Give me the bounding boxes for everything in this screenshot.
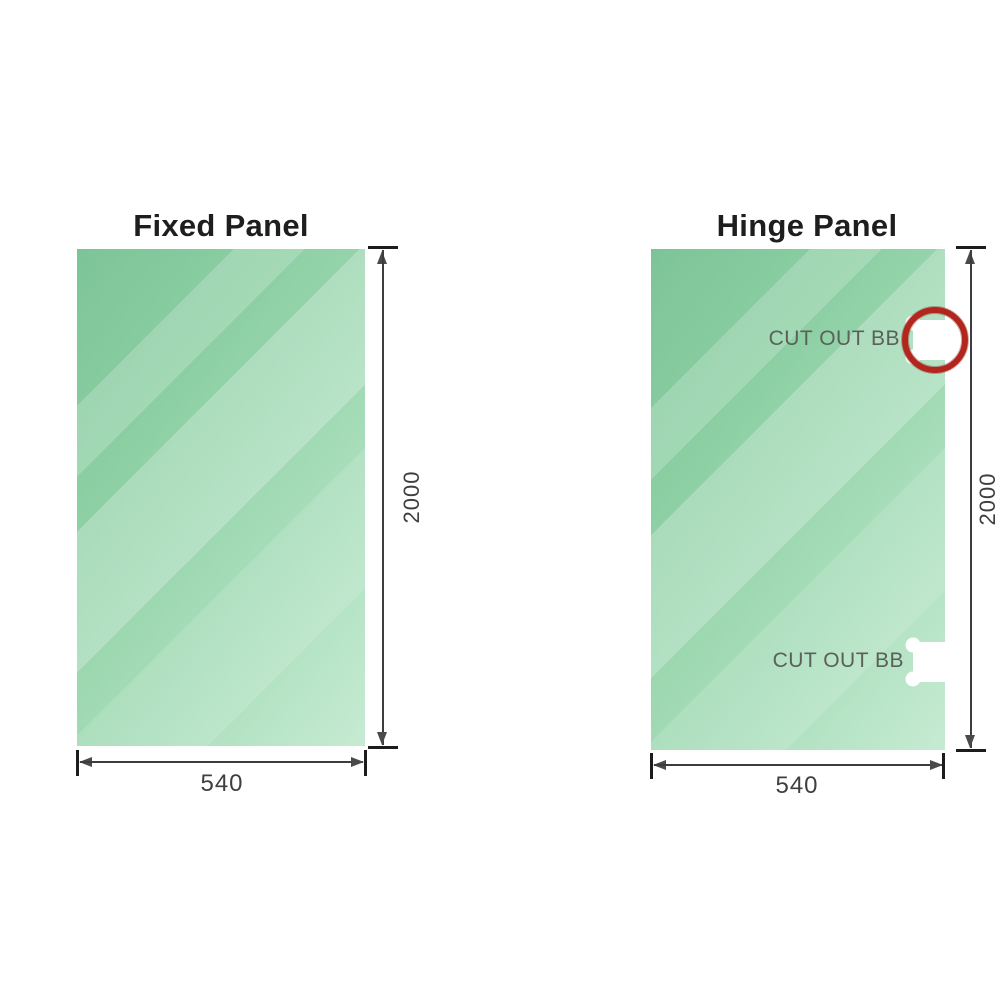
fixed-height-arrow-down-icon: [377, 732, 387, 745]
hinge-height-dim-line: [970, 250, 972, 748]
fixed-height-bottom-tick: [368, 746, 398, 749]
hinge-height-arrow-down-icon: [965, 735, 975, 748]
fixed-height-dim-label: 2000: [399, 471, 425, 524]
fixed-height-top-tick: [368, 246, 398, 249]
fixed-height-dim-line: [382, 250, 384, 745]
hinge-width-dim-label: 540: [775, 772, 818, 800]
hinge-cutout-top-label: CUT OUT BB: [650, 327, 900, 351]
hinge-width-dim-line: [654, 764, 943, 766]
hinge-cutout-bottom-label: CUT OUT BB: [654, 649, 904, 673]
fixed-width-right-tick: [364, 750, 367, 776]
hinge-height-top-tick: [956, 246, 986, 249]
hinge-panel-glass: [651, 249, 945, 750]
hinge-height-dim-label: 2000: [975, 473, 1000, 526]
hinge-width-right-tick: [942, 753, 945, 779]
fixed-width-dim-label: 540: [200, 770, 243, 798]
fixed-width-dim-line: [80, 761, 363, 763]
fixed-panel-title: Fixed Panel: [77, 208, 365, 244]
highlight-circle-icon: [902, 307, 968, 373]
hinge-height-bottom-tick: [956, 749, 986, 752]
fixed-panel-glass: [77, 249, 365, 746]
hinge-cutout-bottom-notch-icon: [903, 636, 945, 688]
fixed-width-arrow-right-icon: [351, 757, 364, 767]
diagram-canvas: Fixed Panel 2000 540 Hinge Panel CUT OUT…: [0, 0, 1000, 1000]
hinge-panel-title: Hinge Panel: [663, 208, 951, 244]
